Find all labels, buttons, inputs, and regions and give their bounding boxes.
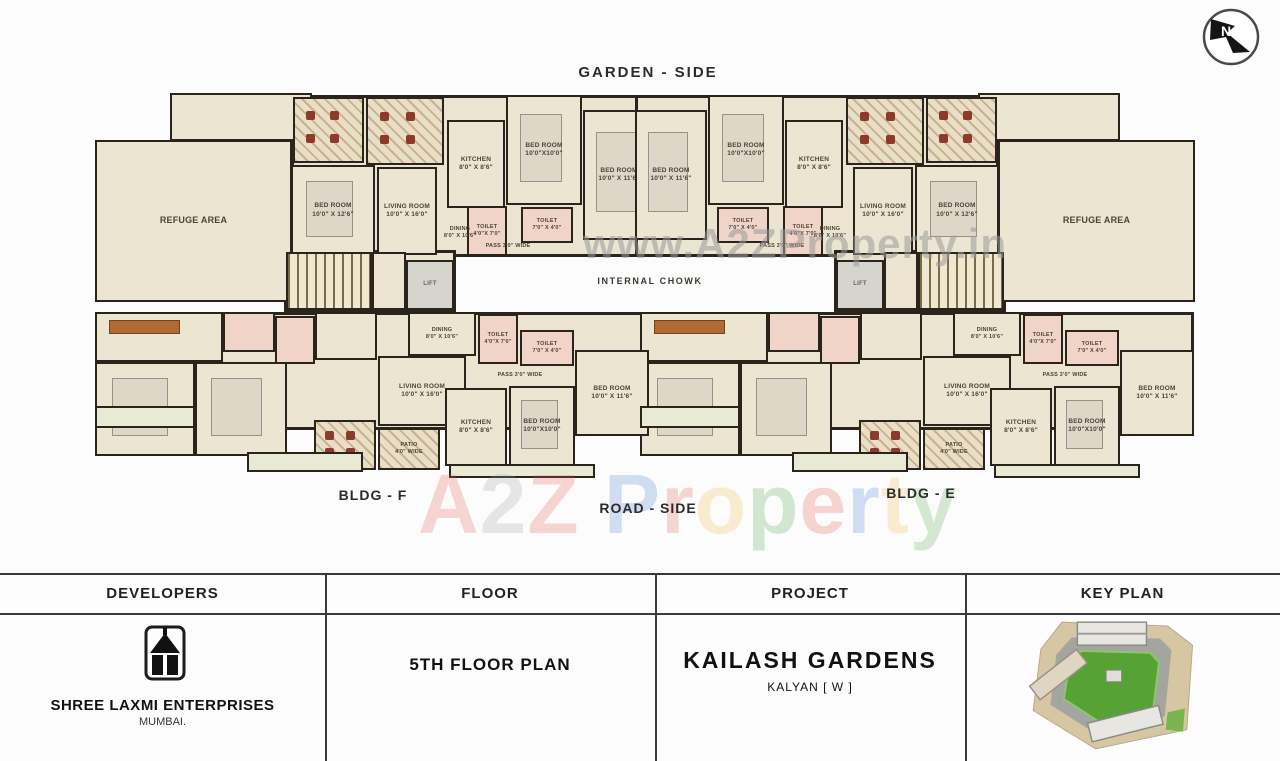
patio-room (293, 97, 364, 163)
title-block-table: DEVELOPERS FLOOR PROJECT KEY PLAN SHREE … (0, 573, 1280, 761)
chair-icon (886, 112, 895, 121)
kitchen: KITCHEN8'0" X 8'6" (447, 120, 505, 208)
dining: DINING8'0" X 10'6" (953, 312, 1021, 356)
garden-side-label: GARDEN - SIDE (558, 64, 738, 81)
bedroom: BED ROOM10'0"X10'0" (509, 386, 575, 466)
toilet: TOILET7'0" X 4'0" (520, 330, 574, 366)
chair-icon (330, 134, 339, 143)
header-floor: FLOOR (325, 585, 655, 602)
passage: PASS 3'0" WIDE (468, 368, 572, 384)
balcony (994, 464, 1140, 478)
kitchen: KITCHEN8'0" X 8'6" (990, 388, 1052, 466)
kitchen: KITCHEN8'0" X 8'6" (785, 120, 843, 208)
brand-watermark-letter: y (910, 457, 958, 551)
toilet: TOILET4'0"X 7'0" (478, 314, 518, 364)
bedroom: BED ROOM10'0"X10'0" (506, 95, 582, 205)
refuge-notch (978, 93, 1120, 141)
brand-watermark-letter: t (881, 457, 910, 551)
lobby (372, 252, 406, 310)
bedroom: BED ROOM10'0"X10'0" (708, 95, 784, 205)
north-arrow-icon: N (1200, 6, 1262, 68)
dining: DINING8'0" X 10'6" (408, 312, 476, 356)
internal-chowk-label: INTERNAL CHOWK (558, 276, 742, 286)
toilet (275, 316, 315, 364)
brand-watermark-letter: p (747, 457, 799, 551)
brand-watermark-letter: r (847, 457, 881, 551)
chair-icon (891, 431, 900, 440)
bldg-f-label: BLDG - F (308, 487, 438, 503)
foyer (315, 312, 377, 360)
dining: DINING8'0" X 10'6" (438, 214, 482, 252)
screenshot-stage: REFUGE AREAREFUGE AREABED ROOM10'0" X 12… (0, 0, 1280, 759)
toilet (820, 316, 860, 364)
kitchen: KITCHEN8'0" X 8'6" (445, 388, 507, 466)
bedroom (740, 362, 832, 456)
toilet: TOILET4'0"X 7'0" (1023, 314, 1063, 364)
header-developers: DEVELOPERS (0, 585, 325, 602)
chair-icon (380, 135, 389, 144)
passage: PASS 3'0" WIDE (1013, 368, 1117, 384)
header-key-plan: KEY PLAN (965, 585, 1280, 602)
wardrobe-icon (109, 320, 179, 334)
floor-plan-title: 5TH FLOOR PLAN (325, 655, 655, 675)
table-header-rule (0, 613, 1280, 615)
bed-icon (756, 378, 807, 436)
chair-icon (325, 431, 334, 440)
brand-watermark-letter: e (799, 457, 847, 551)
road-side-label: ROAD - SIDE (568, 500, 728, 516)
chair-icon (939, 111, 948, 120)
bed-icon (211, 378, 262, 436)
brand-watermark-letter: 2 (480, 457, 528, 551)
patio-room (846, 97, 924, 165)
bedroom: BED ROOM10'0" X 11'6" (575, 350, 649, 436)
developer-logo-icon (143, 622, 187, 684)
chair-icon (330, 111, 339, 120)
toilet: TOILET7'0" X 4'0" (521, 207, 573, 243)
chair-icon (963, 134, 972, 143)
patio-room (926, 97, 997, 163)
brand-watermark-letter: A (418, 457, 480, 551)
header-project: PROJECT (655, 585, 965, 602)
toilet (223, 312, 275, 352)
developer-name: SHREE LAXMI ENTERPRISES (0, 697, 325, 714)
refuge-area: REFUGE AREA (95, 140, 292, 302)
chair-icon (963, 111, 972, 120)
url-watermark: www.A2ZProperty.in (583, 220, 1007, 268)
chair-icon (860, 112, 869, 121)
chair-icon (346, 431, 355, 440)
refuge-notch (170, 93, 312, 141)
hall-room (95, 312, 223, 362)
toilet: TOILET7'0" X 4'0" (1065, 330, 1119, 366)
project-name: KAILASH GARDENS (655, 647, 965, 674)
bedroom: BED ROOM10'0"X10'0" (1054, 386, 1120, 466)
project-location: KALYAN [ W ] (655, 680, 965, 694)
chair-icon (860, 135, 869, 144)
table-divider (965, 575, 967, 761)
balcony (247, 452, 363, 472)
toilet (768, 312, 820, 352)
bldg-e-label: BLDG - E (856, 485, 986, 501)
bedroom (195, 362, 287, 456)
lift: LIFT (406, 260, 454, 310)
wardrobe-icon (654, 320, 724, 334)
patio-room (366, 97, 444, 165)
chair-icon (406, 135, 415, 144)
bedroom: BED ROOM10'0" X 11'6" (1120, 350, 1194, 436)
key-plan-image (1014, 616, 1206, 756)
staircase (286, 252, 372, 310)
chair-icon (406, 112, 415, 121)
hall-room (640, 312, 768, 362)
chair-icon (870, 431, 879, 440)
chair-icon (380, 112, 389, 121)
refuge-area: REFUGE AREA (998, 140, 1195, 302)
living-room: LIVING ROOM10'0" X 16'0" (377, 167, 437, 255)
chair-icon (886, 135, 895, 144)
chair-icon (939, 134, 948, 143)
developer-city: MUMBAI. (0, 716, 325, 728)
chair-icon (306, 134, 315, 143)
balcony (640, 406, 740, 428)
foyer (860, 312, 922, 360)
bedroom: BED ROOM10'0" X 12'6" (291, 165, 375, 256)
balcony (95, 406, 195, 428)
north-letter: N (1221, 23, 1231, 39)
chair-icon (306, 111, 315, 120)
